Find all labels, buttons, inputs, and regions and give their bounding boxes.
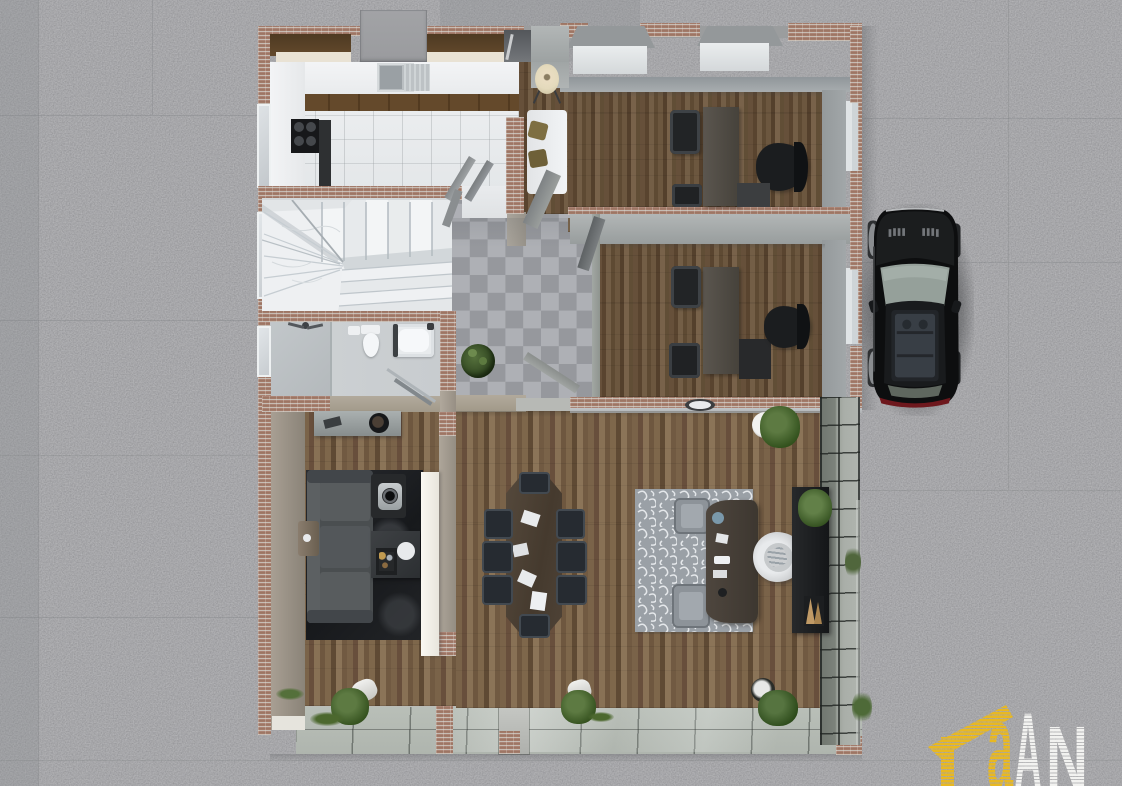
svg-text:a: a — [987, 698, 1013, 786]
svg-text:N: N — [1046, 709, 1088, 786]
svg-text:A: A — [1014, 698, 1042, 786]
